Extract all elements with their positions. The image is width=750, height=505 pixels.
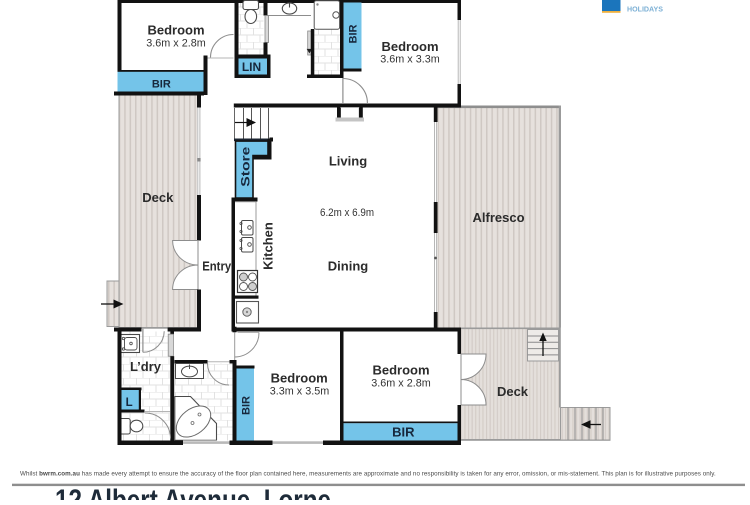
svg-text:3.6m x 2.8m: 3.6m x 2.8m [146, 37, 205, 49]
svg-text:6.2m x 6.9m: 6.2m x 6.9m [320, 207, 374, 219]
svg-text:Whilst bwrm.com.au has made ev: Whilst bwrm.com.au has made every attemp… [20, 471, 716, 478]
svg-text:Bedroom: Bedroom [147, 23, 204, 38]
svg-text:3.6m x 2.8m: 3.6m x 2.8m [371, 378, 430, 390]
svg-text:Bedroom: Bedroom [271, 371, 328, 386]
svg-text:BIR: BIR [152, 78, 171, 90]
svg-text:L’dry: L’dry [130, 359, 162, 374]
svg-text:Entry: Entry [202, 259, 232, 274]
svg-text:LIN: LIN [242, 60, 261, 74]
svg-text:Store: Store [239, 146, 253, 186]
svg-text:Alfresco: Alfresco [472, 210, 524, 225]
svg-text:HOLIDAYS: HOLIDAYS [627, 5, 663, 14]
svg-text:BIR: BIR [240, 396, 252, 415]
svg-text:3.6m x 3.3m: 3.6m x 3.3m [380, 53, 439, 65]
svg-text:Deck: Deck [497, 384, 529, 399]
svg-text:Bedroom: Bedroom [372, 363, 429, 378]
svg-text:L: L [126, 397, 133, 409]
svg-text:3.3m x 3.5m: 3.3m x 3.5m [270, 386, 329, 398]
svg-text:BIR: BIR [392, 425, 415, 440]
svg-text:Deck: Deck [142, 190, 174, 205]
svg-text:BIR: BIR [348, 24, 360, 43]
svg-text:Dining: Dining [328, 259, 368, 274]
svg-text:12 Albert Avenue, Lorne: 12 Albert Avenue, Lorne [55, 484, 331, 500]
svg-text:Bedroom: Bedroom [381, 39, 438, 54]
svg-text:Living: Living [329, 153, 367, 168]
svg-text:Kitchen: Kitchen [260, 222, 275, 270]
